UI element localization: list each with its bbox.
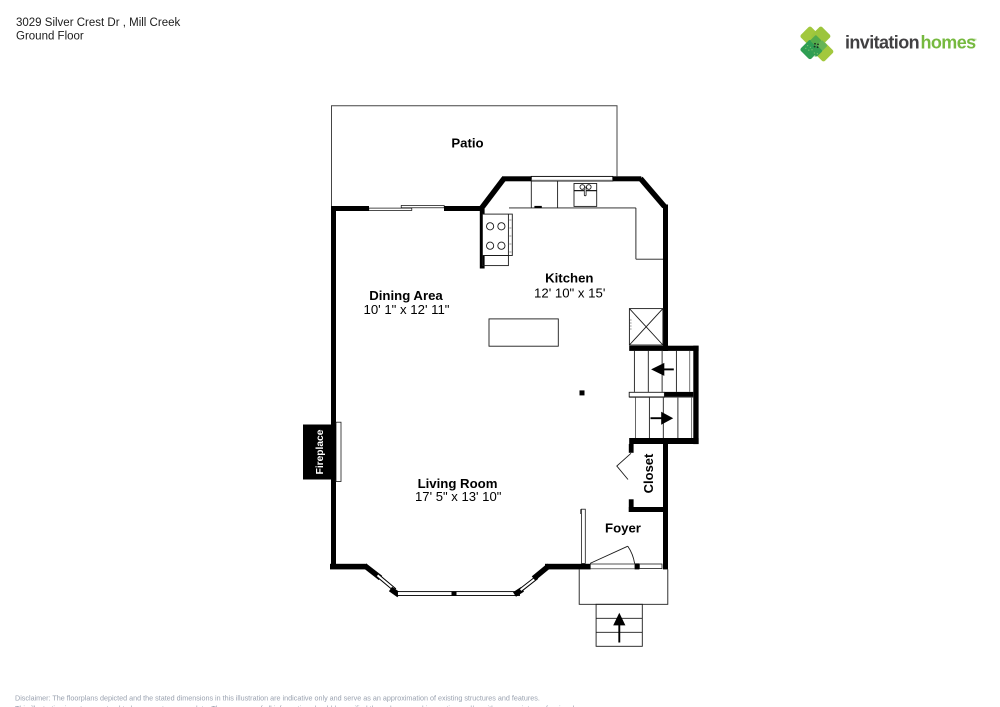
- svg-text:10' 1" x 12' 11": 10' 1" x 12' 11": [363, 302, 449, 317]
- svg-text:Closet: Closet: [641, 453, 656, 493]
- svg-text:Dining Area: Dining Area: [369, 288, 443, 303]
- svg-text:Kitchen: Kitchen: [545, 271, 593, 286]
- svg-text:Fireplace: Fireplace: [315, 429, 326, 474]
- svg-text:17' 5" x 13' 10": 17' 5" x 13' 10": [415, 489, 502, 504]
- svg-text:Disclaimer: The floorplans dep: Disclaimer: The floorplans depicted and …: [15, 694, 540, 703]
- svg-text:™: ™: [972, 38, 977, 44]
- svg-text:3029 Silver Crest Dr , Mill Cr: 3029 Silver Crest Dr , Mill Creek: [16, 17, 180, 29]
- svg-text:Patio: Patio: [451, 136, 483, 151]
- svg-text:12' 10" x 15': 12' 10" x 15': [534, 286, 605, 301]
- svg-text:Ground Floor: Ground Floor: [16, 31, 84, 43]
- svg-text:invitationhomes: invitationhomes: [845, 33, 976, 53]
- svg-text:Foyer: Foyer: [605, 520, 641, 535]
